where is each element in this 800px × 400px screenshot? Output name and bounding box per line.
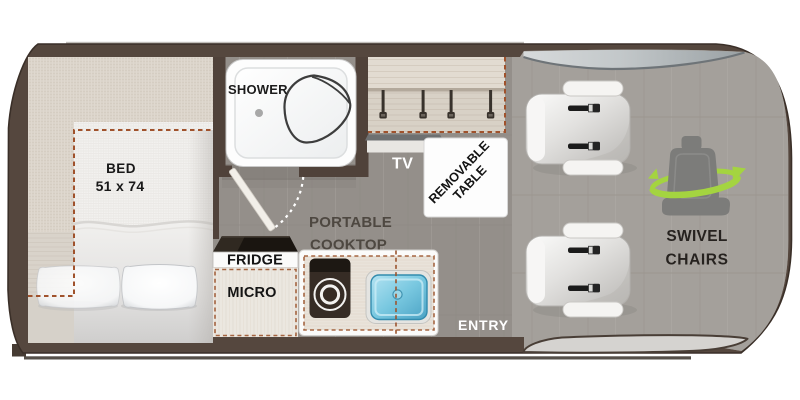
svg-text:PORTABLE: PORTABLE (309, 214, 392, 231)
svg-text:COOKTOP: COOKTOP (310, 237, 387, 254)
svg-text:ENTRY: ENTRY (458, 317, 509, 333)
svg-text:SWIVEL: SWIVEL (666, 228, 727, 245)
svg-text:SHOWER: SHOWER (228, 82, 288, 97)
svg-text:51 x 74: 51 x 74 (96, 178, 145, 194)
svg-text:FRIDGE: FRIDGE (227, 253, 283, 269)
svg-text:MICRO: MICRO (227, 285, 276, 301)
svg-text:CHAIRS: CHAIRS (665, 252, 728, 269)
svg-text:BED: BED (106, 161, 136, 176)
svg-text:TV: TV (392, 156, 413, 173)
